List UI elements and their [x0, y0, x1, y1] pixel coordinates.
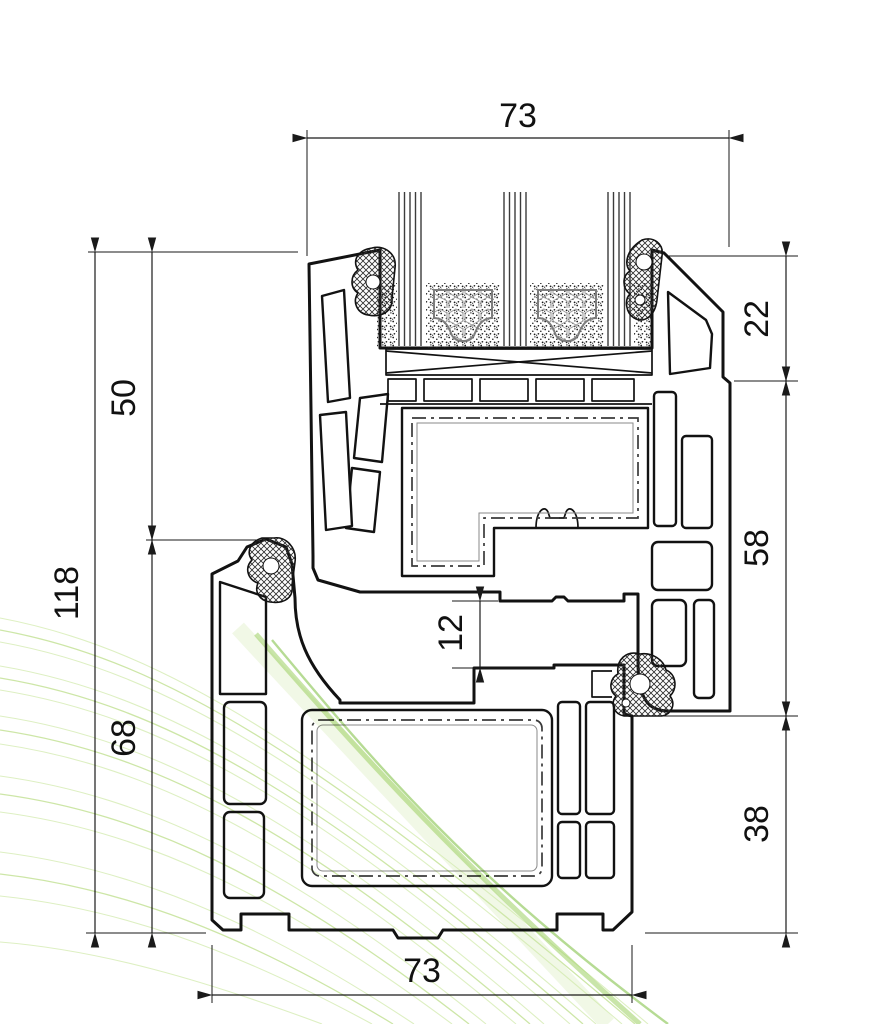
glass-pane-middle [504, 192, 526, 346]
dimension-label: 22 [738, 300, 776, 338]
dimension-label: 73 [403, 952, 441, 990]
dimension-label: 12 [432, 614, 470, 652]
dimension-right-bottom: 38 [645, 716, 798, 933]
glass-pane-inner [608, 192, 630, 346]
dimension-label: 38 [738, 805, 776, 843]
dimension-lower-height: 68 [105, 540, 152, 933]
gasket-glazing-left [352, 247, 395, 315]
dimension-label: 58 [738, 529, 776, 567]
dimension-upper-height: 50 [105, 252, 258, 540]
dimension-rebate-gap: 12 [432, 601, 550, 668]
dimension-label: 68 [105, 719, 143, 757]
sash-profile [309, 250, 730, 711]
dimension-label: 50 [105, 379, 143, 417]
dimension-label: 118 [48, 566, 86, 620]
window-profile-drawing: 73 118 50 68 22 58 38 12 [0, 0, 870, 1024]
dimension-label: 73 [499, 97, 537, 135]
dimension-bottom-width: 73 [212, 945, 632, 1003]
dimension-top-width: 73 [307, 97, 729, 256]
glass-pane-outer [399, 192, 421, 346]
